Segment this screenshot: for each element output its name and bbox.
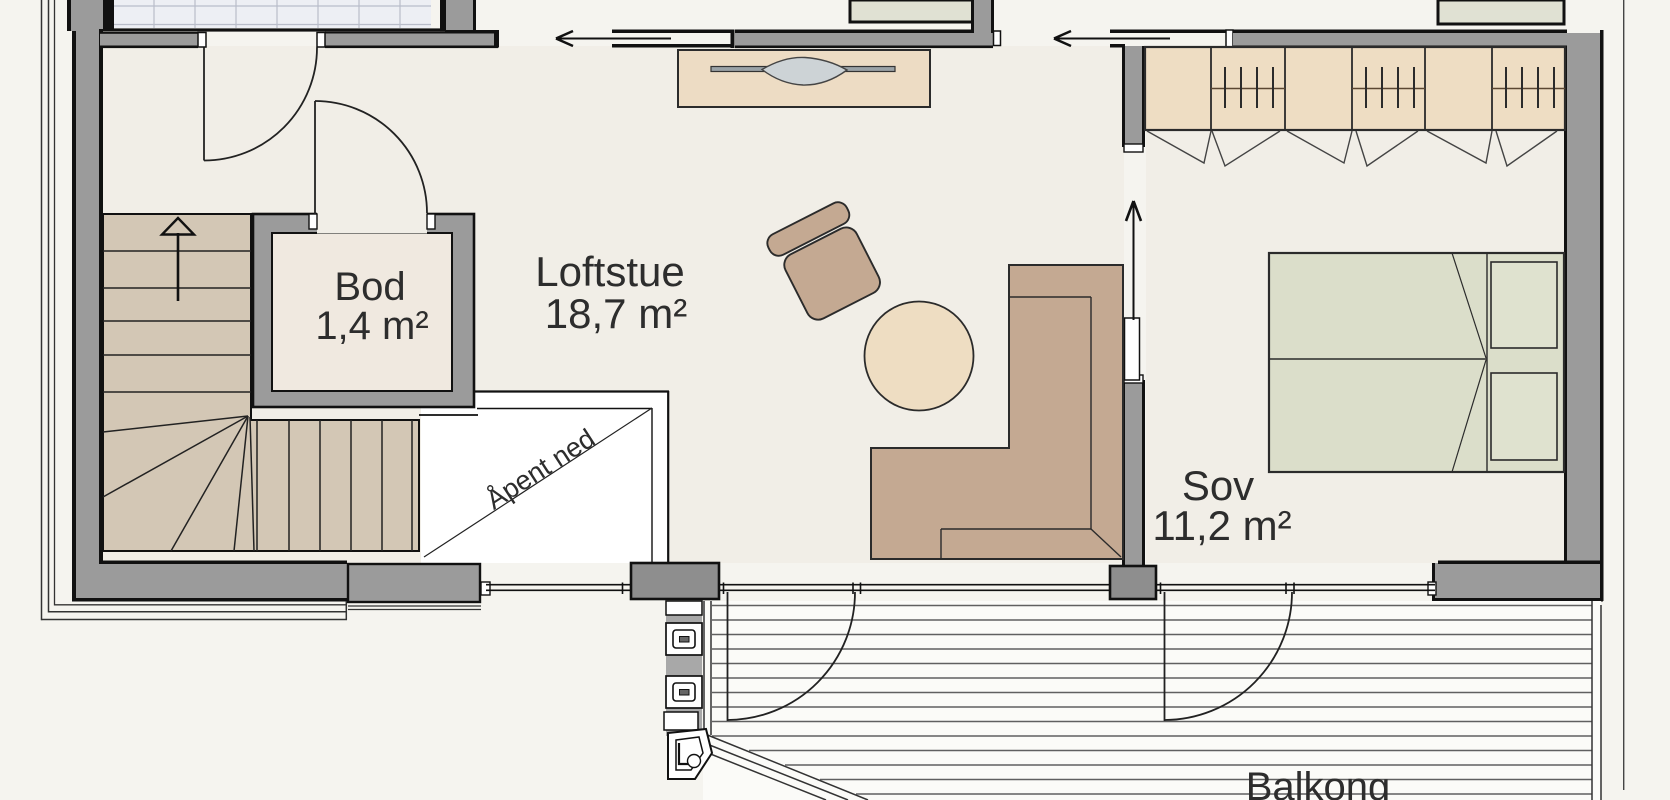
svg-text:Bod: Bod bbox=[334, 265, 405, 309]
svg-text:11,2 m²: 11,2 m² bbox=[1152, 502, 1291, 549]
svg-text:Loftstue: Loftstue bbox=[535, 248, 684, 295]
svg-text:18,7 m²: 18,7 m² bbox=[545, 290, 687, 337]
svg-text:Balkong: Balkong bbox=[1246, 765, 1391, 800]
svg-text:1,4 m²: 1,4 m² bbox=[315, 304, 428, 348]
